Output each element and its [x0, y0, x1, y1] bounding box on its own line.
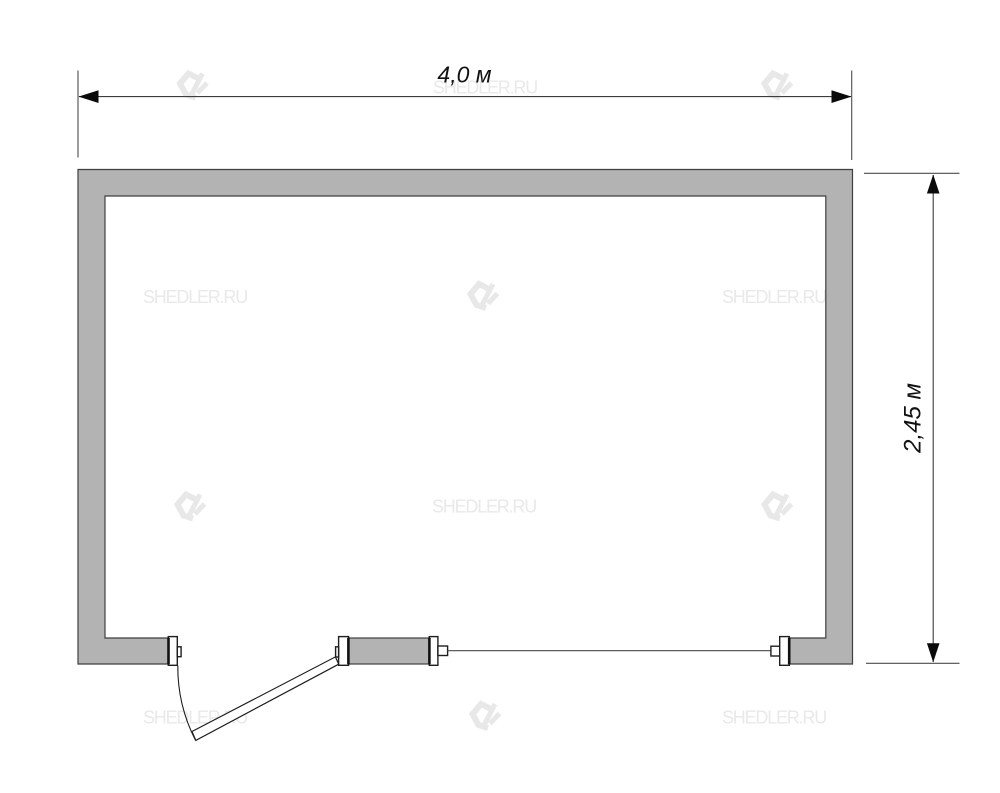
svg-text:2,45 м: 2,45 м [900, 383, 927, 454]
svg-text:SHEDLER.RU: SHEDLER.RU [722, 708, 826, 728]
svg-text:4,0 м: 4,0 м [437, 62, 491, 88]
svg-text:SHEDLER.RU: SHEDLER.RU [722, 287, 826, 307]
svg-text:SHEDLER.RU: SHEDLER.RU [143, 287, 247, 307]
svg-text:SHEDLER.RU: SHEDLER.RU [432, 497, 536, 517]
